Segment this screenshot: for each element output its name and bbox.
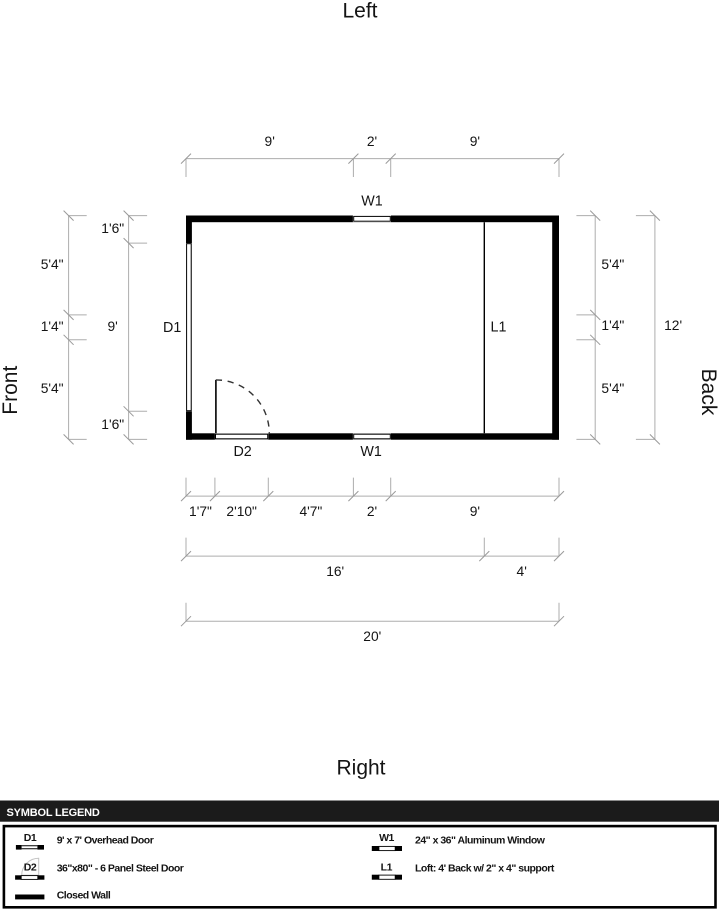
svg-text:2'10": 2'10" [226,504,257,519]
svg-text:D1: D1 [24,832,37,844]
svg-text:Left: Left [342,0,377,23]
svg-text:4': 4' [517,564,527,579]
svg-text:Back: Back [697,369,719,416]
svg-text:L1: L1 [491,320,507,336]
svg-text:9': 9' [470,504,480,519]
svg-text:1'6": 1'6" [101,417,124,432]
svg-text:W1: W1 [361,193,382,209]
svg-text:36"x80" - 6 Panel Steel Door: 36"x80" - 6 Panel Steel Door [57,863,184,875]
svg-text:9': 9' [470,134,480,149]
svg-text:W1: W1 [360,444,381,460]
svg-text:W1: W1 [379,832,394,844]
svg-text:Closed Wall: Closed Wall [57,890,111,902]
svg-text:1'4": 1'4" [41,319,64,334]
svg-text:12': 12' [664,318,682,333]
svg-text:5'4": 5'4" [41,381,64,396]
svg-text:16': 16' [326,564,344,579]
svg-text:Right: Right [336,757,385,780]
svg-text:1'6": 1'6" [101,221,124,236]
svg-text:9': 9' [107,319,117,334]
svg-text:SYMBOL LEGEND: SYMBOL LEGEND [7,807,100,819]
svg-text:1'4": 1'4" [601,318,624,333]
svg-text:2': 2' [367,504,377,519]
svg-text:9': 9' [265,134,275,149]
svg-text:Loft: 4' Back w/ 2" x 4" suppo: Loft: 4' Back w/ 2" x 4" support [415,863,555,875]
svg-text:D2: D2 [233,444,251,460]
svg-text:20': 20' [363,629,381,644]
svg-text:5'4": 5'4" [601,381,624,396]
svg-text:24" x 36" Aluminum Window: 24" x 36" Aluminum Window [415,835,546,847]
svg-text:Front: Front [0,366,22,415]
svg-text:L1: L1 [381,861,393,873]
svg-text:1'7": 1'7" [189,504,212,519]
svg-text:4'7": 4'7" [299,504,322,519]
svg-text:D1: D1 [163,320,181,336]
svg-text:D2: D2 [24,861,37,873]
svg-text:5'4": 5'4" [41,257,64,272]
svg-text:9' x 7' Overhead Door: 9' x 7' Overhead Door [57,835,154,847]
svg-text:5'4": 5'4" [601,257,624,272]
svg-text:2': 2' [367,134,377,149]
